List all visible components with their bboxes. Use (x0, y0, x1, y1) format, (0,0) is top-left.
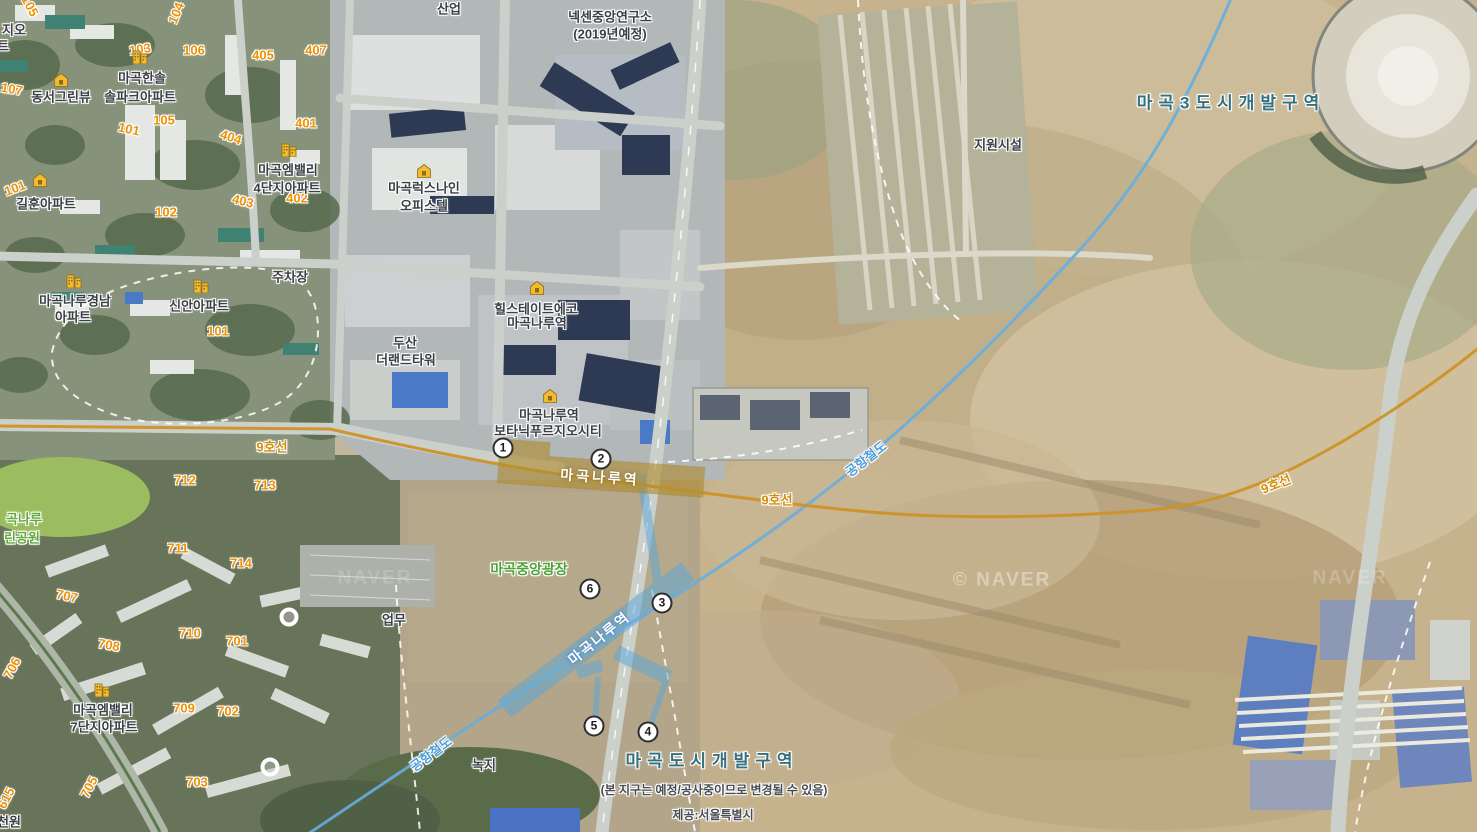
arex-line-label: 공항철도 (408, 734, 454, 773)
poi-label: 마곡나루경남 (39, 295, 111, 308)
house-icon (54, 73, 69, 87)
block-number-label: 709 (173, 702, 195, 715)
line9-station-label: 마곡나루역 (560, 467, 640, 487)
poi-label: 산업 (437, 3, 461, 16)
poi-label: 보타닉푸르지오시티 (494, 425, 602, 438)
block-number-label: 708 (97, 637, 121, 654)
arex-line-label: 공항철도 (843, 439, 889, 479)
naver-watermark: NAVER (1312, 569, 1387, 588)
poi-label: 길훈아파트 (16, 198, 76, 211)
block-number-label: 713 (254, 479, 276, 492)
block-number-label: 701 (226, 635, 248, 648)
block-number-label: 407 (305, 44, 327, 57)
block-number-label: 105 (153, 114, 175, 127)
poi-label: 마곡럭스나인 (388, 182, 460, 195)
roundabout-icon (261, 758, 280, 777)
building-icon (193, 279, 209, 293)
poi-label: 녹지 (472, 759, 496, 772)
house-icon (530, 281, 545, 295)
map-label-layer: 105지오트107동서그린뷰마곡한솔솔파크아파트1031041064054071… (0, 0, 1477, 832)
poi-label: 더랜드타워 (376, 354, 436, 367)
poi-label: 지원시설 (974, 139, 1022, 152)
poi-label: 4단지아파트 (253, 182, 320, 195)
naver-watermark: NAVER (337, 569, 412, 588)
station-exit-4: 4 (638, 722, 659, 743)
block-number-label: 710 (179, 627, 201, 640)
poi-label: 마곡엠밸리 (73, 704, 133, 717)
roundabout-icon (280, 608, 299, 627)
poi-label-partial: 트 (0, 40, 9, 53)
block-number-label: 703 (186, 776, 208, 789)
poi-label: 두산 (393, 337, 417, 350)
poi-label: 솔파크아파트 (104, 91, 176, 104)
block-number-label: 101 (3, 178, 28, 198)
station-exit-5: 5 (584, 716, 605, 737)
map-note: (본 지구는 예정/공사중이므로 변경될 수 있음) (601, 784, 828, 796)
block-number-label: 615 (0, 785, 17, 810)
block-number-label: 712 (174, 474, 196, 487)
poi-label: 마곡나루역 (507, 317, 567, 330)
block-number-label: 707 (55, 587, 79, 604)
block-number-label: 711 (168, 542, 189, 555)
building-icon (94, 683, 110, 697)
building-icon (132, 50, 148, 64)
subway-line9-label: 9호선 (1259, 472, 1293, 496)
station-exit-1: 1 (493, 438, 514, 459)
naver-watermark: © NAVER (953, 571, 1051, 590)
building-icon (281, 143, 297, 157)
block-number-label: 101 (207, 325, 229, 338)
district-zone-label: 마곡3도시개발구역 (1137, 95, 1326, 112)
subway-line9-label: 9호선 (761, 494, 792, 507)
poi-label: 오피스텔 (400, 200, 448, 213)
block-number-label: 104 (166, 1, 186, 26)
house-icon (417, 164, 432, 178)
poi-label: (2019년예정) (573, 28, 646, 41)
subway-line9-label: 9호선 (256, 441, 287, 454)
block-number-label: 705 (78, 774, 100, 799)
block-number-label: 102 (155, 206, 177, 219)
block-number-label: 706 (1, 655, 23, 680)
poi-label: 동서그린뷰 (31, 91, 91, 104)
poi-label-partial: 천원 (0, 816, 21, 829)
poi-label: 7단지아파트 (70, 721, 137, 734)
poi-label: 마곡한솔 (118, 72, 166, 85)
house-icon (33, 173, 48, 187)
block-number-label: 101 (117, 120, 141, 137)
block-number-label: 403 (231, 192, 255, 210)
building-icon (66, 274, 82, 288)
block-number-label: 106 (183, 44, 205, 57)
poi-label: 주차장 (272, 271, 308, 284)
poi-label: 넥센중앙연구소 (568, 11, 652, 24)
block-number-label: 105 (19, 0, 41, 19)
poi-label: 마곡나루역 (519, 409, 579, 422)
poi-label-partial: 지오 (2, 24, 26, 37)
block-number-label: 401 (295, 117, 317, 130)
poi-label: 업무 (382, 614, 406, 627)
block-number-label: 404 (219, 127, 244, 146)
district-zone-label: 마곡도시개발구역 (625, 753, 798, 770)
map-canvas[interactable]: 105지오트107동서그린뷰마곡한솔솔파크아파트1031041064054071… (0, 0, 1477, 832)
house-icon (543, 389, 558, 403)
plaza-label: 마곡중앙광장 (490, 562, 567, 576)
arex-station-label: 마곡나루역 (566, 609, 633, 667)
block-number-label: 107 (0, 81, 24, 98)
map-credit: 제공:서울특별시 (672, 809, 753, 821)
poi-label: 힐스테이트에코 (494, 303, 578, 316)
park-label-partial: 린공원 (4, 532, 40, 545)
poi-label: 신안아파트 (169, 300, 229, 313)
station-exit-2: 2 (591, 449, 612, 470)
poi-label: 아파트 (55, 311, 91, 324)
park-label-partial: 곡나루 (6, 513, 42, 526)
block-number-label: 714 (230, 557, 252, 570)
station-exit-3: 3 (652, 593, 673, 614)
station-exit-6: 6 (580, 579, 601, 600)
poi-label: 마곡엠밸리 (258, 164, 318, 177)
block-number-label: 405 (252, 49, 274, 62)
block-number-label: 702 (217, 705, 239, 718)
